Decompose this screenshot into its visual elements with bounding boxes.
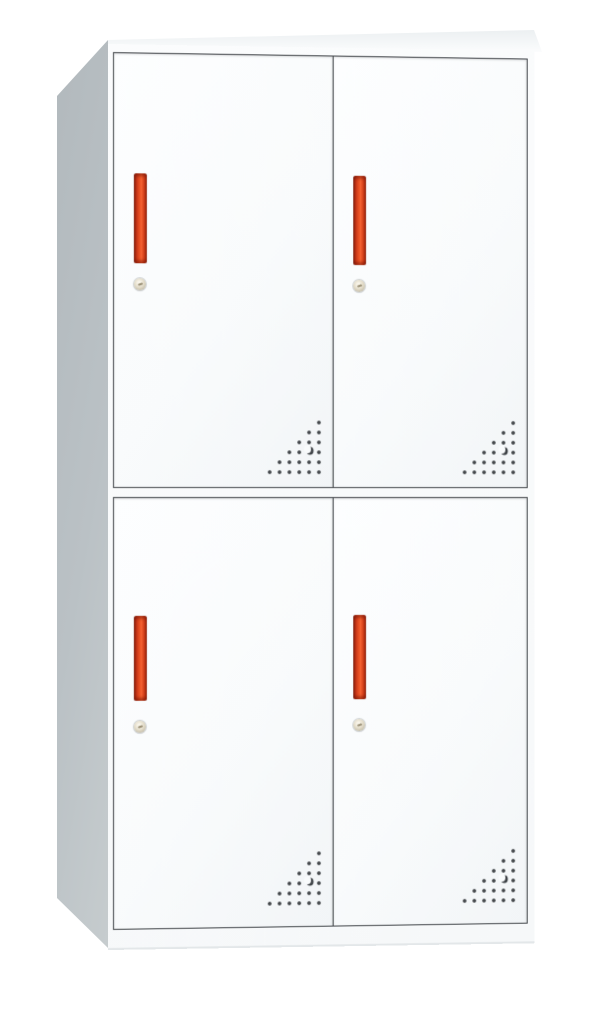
ventilation-holes <box>460 418 518 477</box>
locker-door-top-right <box>333 55 528 488</box>
vent-crescent-hole <box>304 876 311 884</box>
keyhole-lock <box>134 721 146 733</box>
door-handle <box>353 176 366 265</box>
keyhole-lock <box>134 278 146 290</box>
ventilation-holes <box>265 848 324 908</box>
vent-crescent-hole <box>304 445 311 453</box>
locker-cabinet-product-photo <box>0 0 605 1009</box>
door-handle <box>353 615 366 699</box>
ventilation-holes <box>460 846 518 906</box>
ventilation-holes <box>265 417 324 477</box>
door-handle <box>134 616 147 701</box>
locker-door-bottom-right <box>333 497 528 927</box>
locker-door-bottom-left <box>113 497 334 930</box>
vent-crescent-hole <box>499 874 506 882</box>
keyhole-lock <box>353 719 365 731</box>
cabinet-front-face <box>108 44 534 950</box>
vent-crescent-hole <box>499 446 506 454</box>
door-handle <box>134 173 147 263</box>
keyhole-lock <box>353 280 365 292</box>
cabinet-side-panel <box>57 40 108 948</box>
locker-door-top-left <box>113 52 334 488</box>
